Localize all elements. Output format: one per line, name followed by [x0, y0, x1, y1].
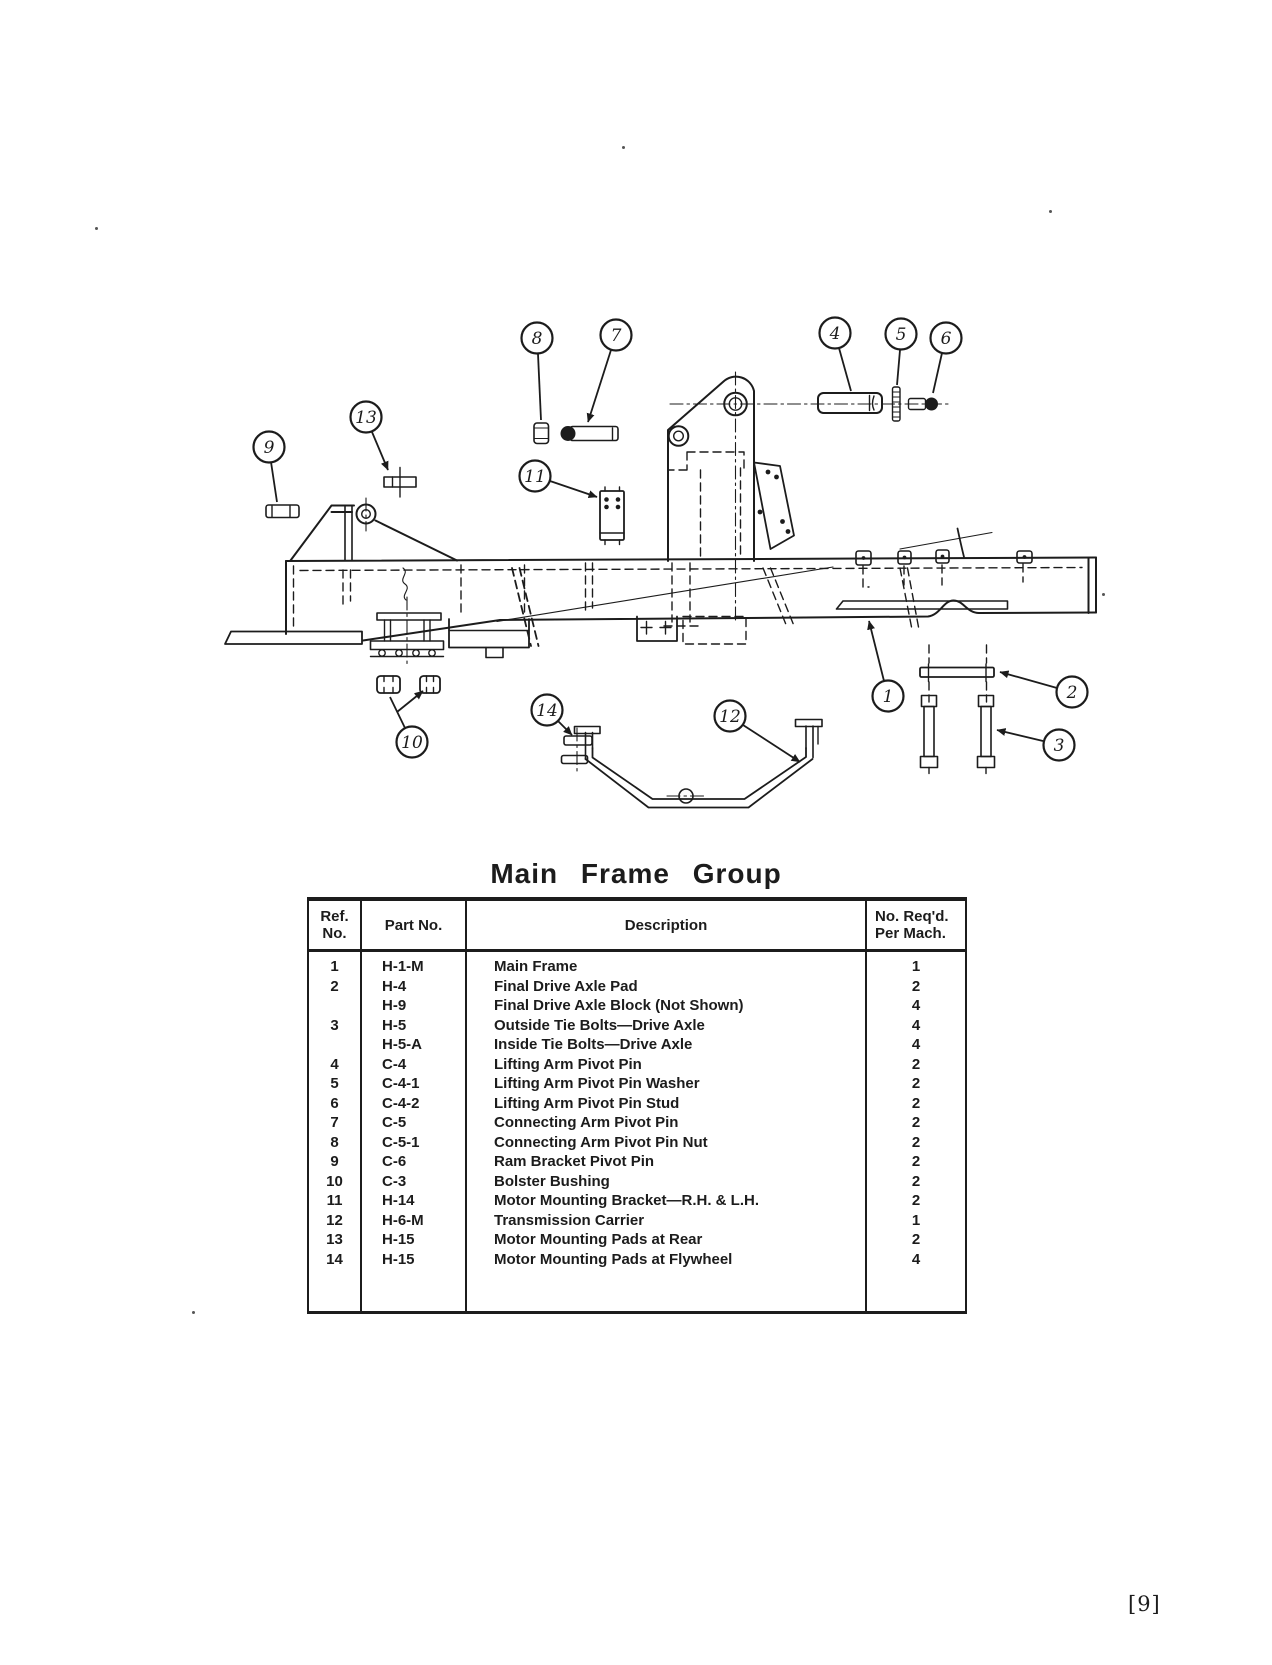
table-spacer-row [308, 1269, 966, 1313]
part-2-final-drive-axle-pad [920, 645, 994, 702]
cell-qty: 2 [866, 977, 966, 997]
callout-number-13: 13 [355, 408, 377, 428]
callout-number-14: 14 [536, 701, 558, 721]
spacer-cell [361, 1269, 466, 1313]
leader-line-11 [550, 481, 597, 497]
table-row: 11H-14Motor Mounting Bracket—R.H. & L.H.… [308, 1191, 966, 1211]
table-row: 9C-6Ram Bracket Pivot Pin2 [308, 1152, 966, 1172]
header-ref-line2: No. [309, 925, 360, 942]
cell-part-no: C-3 [361, 1172, 466, 1192]
callout-number-11: 11 [524, 467, 546, 487]
cell-ref-no: 14 [308, 1250, 361, 1270]
part-7-connecting-arm-pivot-pin [561, 426, 619, 441]
cell-part-no: H-9 [361, 996, 466, 1016]
callout-number-1: 1 [883, 687, 894, 707]
cell-description: Motor Mounting Bracket—R.H. & L.H. [466, 1191, 866, 1211]
cell-part-no: C-5-1 [361, 1133, 466, 1153]
table-row: 2H-4Final Drive Axle Pad2 [308, 977, 966, 997]
cell-part-no: C-6 [361, 1152, 466, 1172]
leader-line-6 [933, 353, 942, 393]
header-qty: No. Req'd. Per Mach. [866, 899, 966, 951]
cell-part-no: H-5 [361, 1016, 466, 1036]
cell-ref-no [308, 996, 361, 1016]
part-8-pivot-pin-nut [534, 423, 549, 444]
cell-qty: 2 [866, 1094, 966, 1114]
cell-ref-no: 6 [308, 1094, 361, 1114]
cell-qty: 2 [866, 1191, 966, 1211]
header-ref-no: Ref. No. [308, 899, 361, 951]
cell-part-no: H-14 [361, 1191, 466, 1211]
cell-part-no: C-5 [361, 1113, 466, 1133]
frame-bottom-edge [500, 601, 1096, 621]
scan-speck [1102, 593, 1105, 596]
scan-speck [95, 227, 98, 230]
cell-description: Outside Tie Bolts—Drive Axle [466, 1016, 866, 1036]
part-4-lifting-arm-pivot-pin [818, 393, 882, 413]
table-row: 1H-1-MMain Frame1 [308, 951, 966, 977]
leader-line-8 [538, 354, 541, 420]
leader-line-4 [839, 348, 851, 391]
part-12-transmission-carrier [575, 720, 823, 808]
table-row: H-9Final Drive Axle Block (Not Shown)4 [308, 996, 966, 1016]
cell-part-no: H-5-A [361, 1035, 466, 1055]
callout-number-10: 10 [401, 733, 423, 753]
cell-ref-no: 2 [308, 977, 361, 997]
part-14-motor-mounting-pads [562, 728, 593, 771]
cell-part-no: H-4 [361, 977, 466, 997]
leader-line-9 [271, 462, 277, 502]
parts-table-body: 1H-1-MMain Frame12H-4Final Drive Axle Pa… [308, 951, 966, 1313]
cell-qty: 1 [866, 1211, 966, 1231]
frame-foot-plate [225, 632, 362, 645]
cell-ref-no: 3 [308, 1016, 361, 1036]
callout-number-8: 8 [532, 329, 543, 349]
cell-description: Lifting Arm Pivot Pin Stud [466, 1094, 866, 1114]
table-row: 6C-4-2Lifting Arm Pivot Pin Stud2 [308, 1094, 966, 1114]
cell-ref-no: 1 [308, 951, 361, 977]
table-row: H-5-AInside Tie Bolts—Drive Axle4 [308, 1035, 966, 1055]
header-qty-line2: Per Mach. [875, 925, 965, 942]
cell-qty: 4 [866, 1250, 966, 1270]
header-ref-line1: Ref. [309, 908, 360, 925]
cell-description: Connecting Arm Pivot Pin Nut [466, 1133, 866, 1153]
callout-number-9: 9 [264, 438, 275, 458]
cell-description: Final Drive Axle Pad [466, 977, 866, 997]
cell-ref-no [308, 1035, 361, 1055]
cell-description: Motor Mounting Pads at Flywheel [466, 1250, 866, 1270]
leader-line-7 [588, 350, 611, 422]
cell-ref-no: 13 [308, 1230, 361, 1250]
part-13-motor-mounting-pad [384, 468, 416, 498]
header-part-no: Part No. [361, 899, 466, 951]
spacer-cell [308, 1269, 361, 1313]
leader-line-10 [397, 691, 423, 712]
cell-ref-no: 11 [308, 1191, 361, 1211]
cell-description: Bolster Bushing [466, 1172, 866, 1192]
scan-speck [1049, 210, 1052, 213]
cell-ref-no: 7 [308, 1113, 361, 1133]
leader-line-12 [743, 725, 800, 762]
cell-qty: 2 [866, 1055, 966, 1075]
spacer-cell [866, 1269, 966, 1313]
callouts-layer: 1234567891011121314 [254, 318, 1088, 763]
cell-qty: 2 [866, 1172, 966, 1192]
part-9-ram-bracket-pivot-pin [266, 505, 299, 518]
figure-title: Main Frame Group [0, 858, 1272, 890]
spacer-cell [466, 1269, 866, 1313]
part-11-motor-mounting-bracket [600, 487, 624, 545]
table-row: 5C-4-1Lifting Arm Pivot Pin Washer2 [308, 1074, 966, 1094]
callout-number-6: 6 [941, 329, 952, 349]
callout-number-3: 3 [1054, 736, 1065, 756]
callout-number-7: 7 [611, 326, 622, 346]
leader-line-14 [558, 721, 572, 735]
frame-top-rail [286, 558, 1096, 562]
cell-part-no: C-4-2 [361, 1094, 466, 1114]
header-description: Description [466, 899, 866, 951]
cell-part-no: H-15 [361, 1230, 466, 1250]
cell-part-no: C-4 [361, 1055, 466, 1075]
table-row: 7C-5Connecting Arm Pivot Pin2 [308, 1113, 966, 1133]
cell-ref-no: 12 [308, 1211, 361, 1231]
cell-qty: 4 [866, 1016, 966, 1036]
table-row: 14H-15Motor Mounting Pads at Flywheel4 [308, 1250, 966, 1270]
cell-part-no: C-4-1 [361, 1074, 466, 1094]
scan-speck [622, 146, 625, 149]
leader-line-13 [372, 432, 388, 470]
cell-qty: 4 [866, 1035, 966, 1055]
table-row: 13H-15Motor Mounting Pads at Rear2 [308, 1230, 966, 1250]
cell-part-no: H-6-M [361, 1211, 466, 1231]
table-row: 3H-5Outside Tie Bolts—Drive Axle4 [308, 1016, 966, 1036]
table-row: 10C-3Bolster Bushing2 [308, 1172, 966, 1192]
cell-description: Motor Mounting Pads at Rear [466, 1230, 866, 1250]
cell-ref-no: 5 [308, 1074, 361, 1094]
cell-qty: 2 [866, 1152, 966, 1172]
scan-speck [192, 1311, 195, 1314]
cell-part-no: H-15 [361, 1250, 466, 1270]
cell-description: Final Drive Axle Block (Not Shown) [466, 996, 866, 1016]
cell-qty: 1 [866, 951, 966, 977]
part-10-bolster-bushings [377, 676, 440, 693]
manual-page: 1234567891011121314 Main Frame Group Ref… [0, 0, 1272, 1665]
callout-number-4: 4 [829, 324, 841, 344]
header-desc-line1: Description [467, 917, 865, 934]
cell-ref-no: 8 [308, 1133, 361, 1153]
callout-number-12: 12 [719, 707, 741, 727]
cell-qty: 4 [866, 996, 966, 1016]
cell-qty: 2 [866, 1133, 966, 1153]
leader-line-5 [897, 350, 900, 385]
cell-description: Lifting Arm Pivot Pin [466, 1055, 866, 1075]
cell-description: Transmission Carrier [466, 1211, 866, 1231]
cell-qty: 2 [866, 1230, 966, 1250]
leader-line-2 [1000, 672, 1057, 688]
cell-ref-no: 4 [308, 1055, 361, 1075]
header-qty-line1: No. Req'd. [875, 908, 965, 925]
parts-table-header: Ref. No. Part No. Description No. Req'd.… [308, 899, 966, 951]
table-row: 4C-4Lifting Arm Pivot Pin2 [308, 1055, 966, 1075]
cell-ref-no: 9 [308, 1152, 361, 1172]
table-row: 8C-5-1Connecting Arm Pivot Pin Nut2 [308, 1133, 966, 1153]
leader-line-1 [869, 621, 884, 681]
page-number: [9] [1128, 1592, 1188, 1616]
callout-number-2: 2 [1066, 683, 1078, 703]
cell-description: Inside Tie Bolts—Drive Axle [466, 1035, 866, 1055]
cell-qty: 2 [866, 1074, 966, 1094]
cell-description: Lifting Arm Pivot Pin Washer [466, 1074, 866, 1094]
part-3-tie-bolts [921, 696, 995, 774]
cell-description: Connecting Arm Pivot Pin [466, 1113, 866, 1133]
main-frame-exploded-diagram: 1234567891011121314 [0, 0, 1272, 845]
cell-ref-no: 10 [308, 1172, 361, 1192]
cell-qty: 2 [866, 1113, 966, 1133]
leader-line-3 [997, 730, 1043, 741]
cell-description: Main Frame [466, 951, 866, 977]
cell-description: Ram Bracket Pivot Pin [466, 1152, 866, 1172]
callout-number-5: 5 [896, 325, 907, 345]
header-part-line1: Part No. [362, 917, 465, 934]
parts-table: Ref. No. Part No. Description No. Req'd.… [307, 897, 967, 1314]
table-row: 12H-6-MTransmission Carrier1 [308, 1211, 966, 1231]
cell-part-no: H-1-M [361, 951, 466, 977]
